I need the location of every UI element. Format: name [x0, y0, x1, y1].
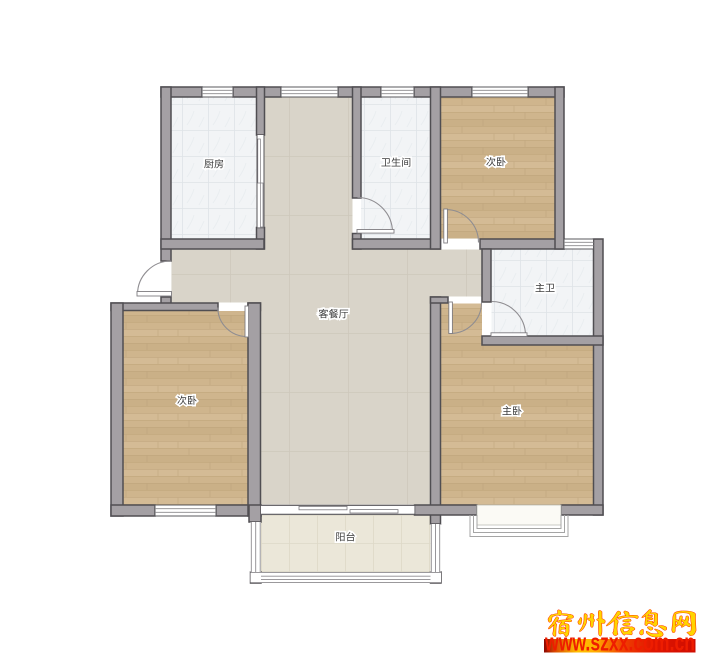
svg-text:www.szxx.com.cn: www.szxx.com.cn — [544, 630, 695, 657]
